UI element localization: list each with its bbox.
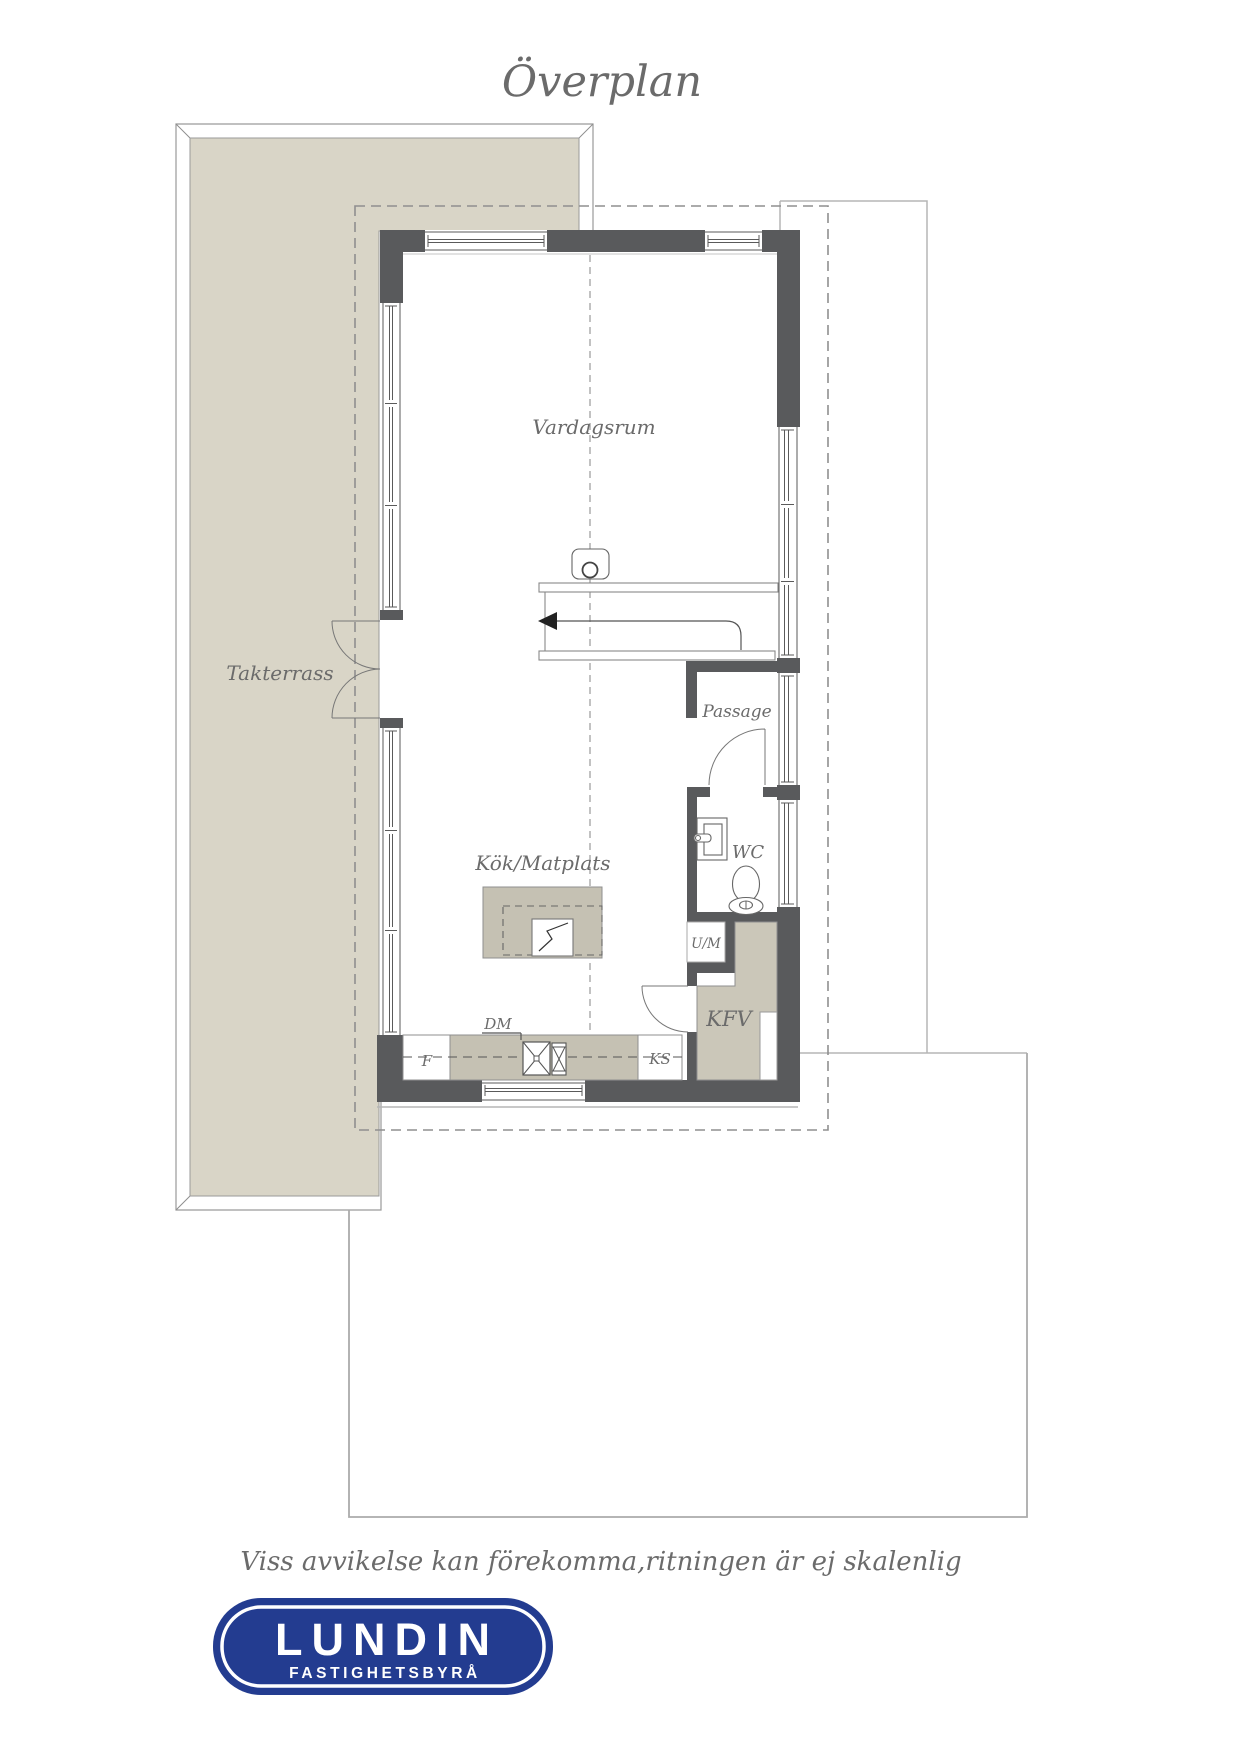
- kitchen-island: [483, 887, 602, 958]
- wall-bottom-1: [377, 1080, 482, 1102]
- wall-left-2: [377, 1035, 403, 1080]
- wall-left-1: [380, 252, 403, 303]
- wall-left-jamb-top: [380, 610, 403, 620]
- label-dm: DM: [483, 1015, 512, 1033]
- wall-right-1: [777, 252, 800, 427]
- label-wc: WC: [732, 842, 765, 863]
- label-passage: Passage: [701, 702, 771, 722]
- label-kfv: KFV: [705, 1007, 753, 1031]
- label-vardagsrum: Vardagsrum: [532, 415, 655, 439]
- disclaimer-text: Viss avvikelse kan förekomma,ritningen ä…: [240, 1547, 961, 1577]
- window-left-lower: [381, 728, 402, 1035]
- wall-kfv-left-upper: [687, 973, 697, 986]
- wall-um-bottom: [687, 962, 735, 973]
- floorplan-drawing: Vardagsrum Takterrass Passage WC Kök/Mat…: [0, 0, 1240, 1754]
- wall-wc-bottom: [687, 912, 777, 922]
- window-top-1: [425, 231, 547, 251]
- drainer-icon: [552, 1043, 566, 1075]
- wall-wc-left: [687, 787, 697, 922]
- kfv-duct-notch: [760, 1012, 777, 1080]
- wc-sink-icon: [694, 818, 727, 860]
- logo-subtitle: FASTIGHETSBYRÅ: [289, 1665, 481, 1682]
- label-f: F: [421, 1052, 433, 1070]
- wall-um-right: [725, 922, 735, 962]
- stair-lower-band: [539, 651, 775, 660]
- wall-wc-top-left: [687, 787, 710, 797]
- page-title: Överplan: [502, 56, 702, 107]
- wall-top-1: [380, 230, 425, 252]
- logo-name: LUNDIN: [275, 1614, 499, 1665]
- floorplan-page: Vardagsrum Takterrass Passage WC Kök/Mat…: [0, 0, 1240, 1754]
- window-left-upper: [381, 303, 402, 610]
- wall-right-3: [777, 785, 800, 800]
- label-ks: KS: [648, 1050, 670, 1068]
- wall-top-3: [762, 230, 800, 252]
- label-um: U/M: [691, 936, 722, 952]
- label-kok-matplats: Kök/Matplats: [474, 851, 610, 875]
- wall-kfv-left-lower: [687, 1032, 697, 1080]
- hob-box: [532, 919, 573, 956]
- label-takterrass: Takterrass: [226, 661, 333, 685]
- wall-right-2: [777, 658, 800, 673]
- footprint-lower-rect: [349, 1053, 1027, 1517]
- lundin-logo: LUNDIN FASTIGHETSBYRÅ: [213, 1598, 553, 1695]
- wall-right-4: [777, 907, 800, 1102]
- stair-upper-band: [539, 583, 778, 592]
- ceiling-lamp-icon: [572, 549, 609, 579]
- wall-top-2: [547, 230, 705, 252]
- wall-passage-stub: [686, 661, 697, 718]
- wall-bottom-2: [585, 1080, 800, 1102]
- window-top-2: [705, 231, 762, 251]
- wall-wc-top-right: [763, 787, 777, 797]
- wall-passage-north: [686, 661, 777, 672]
- sink-icon: [523, 1042, 550, 1075]
- wall-left-jamb-bottom: [380, 718, 403, 728]
